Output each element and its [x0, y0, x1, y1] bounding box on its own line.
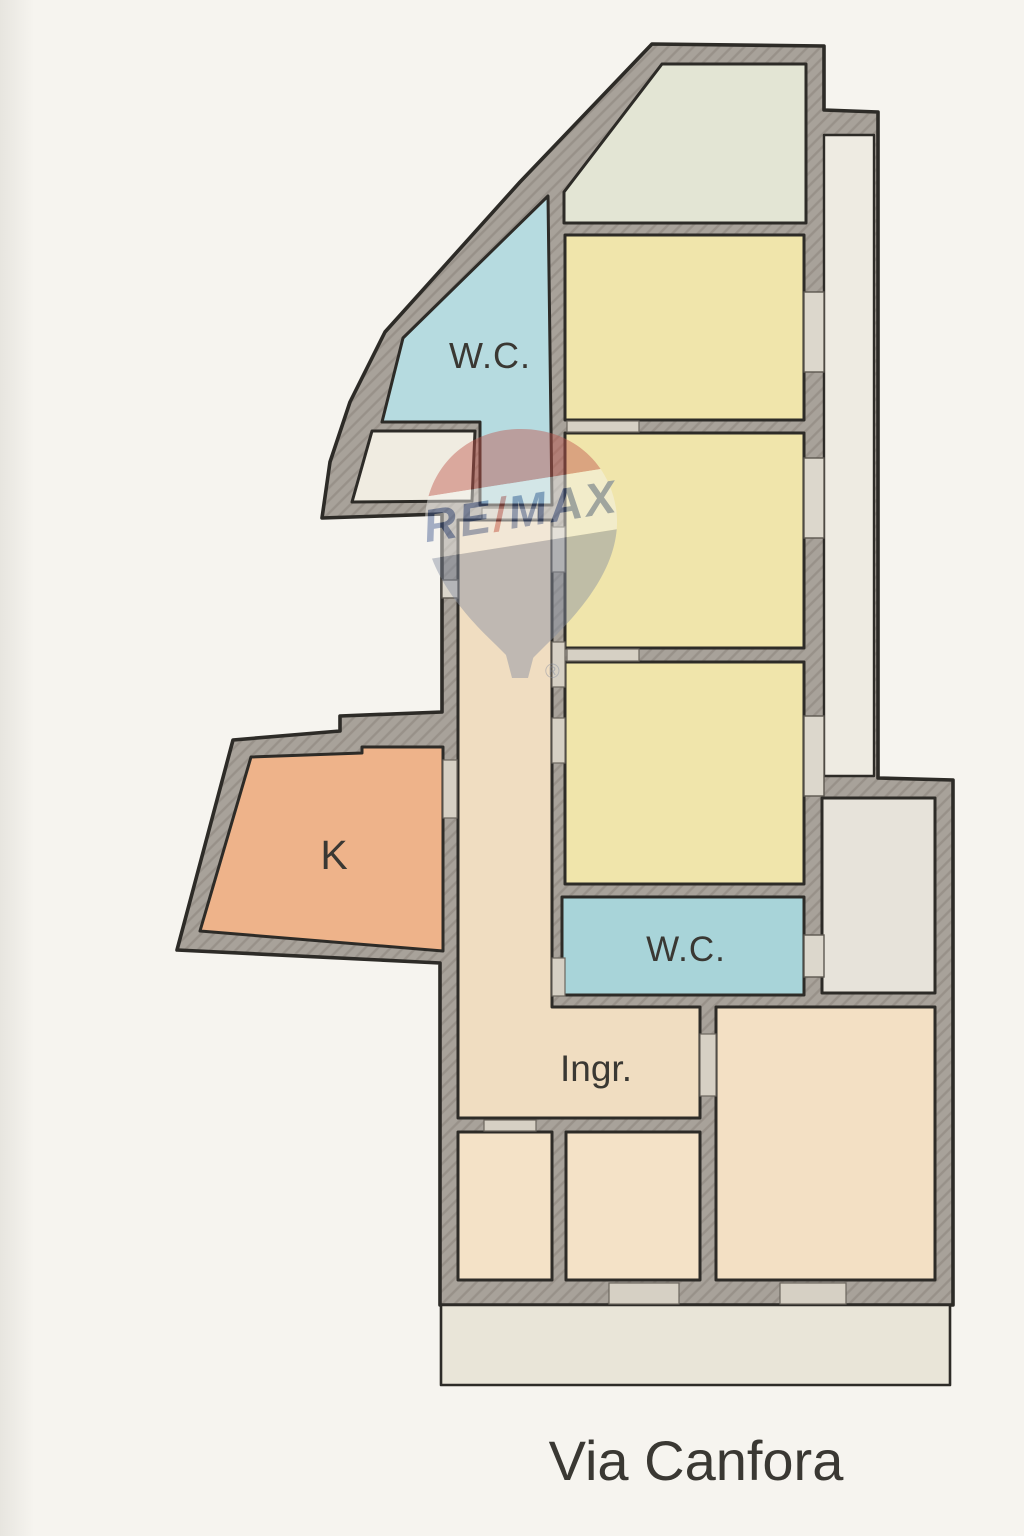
floorplan-page: { "plan": { "street_label": "Via Canfora…	[0, 0, 1024, 1536]
door-opening	[484, 1120, 536, 1131]
room-bedroom-1	[565, 235, 804, 420]
label-wc-top: W.C.	[449, 335, 531, 376]
door-opening	[567, 421, 639, 432]
room-living	[716, 1007, 935, 1280]
room-bottom-2	[566, 1132, 700, 1280]
label-entrance: Ingr.	[560, 1048, 632, 1089]
window-opening	[804, 716, 824, 796]
room-storage	[822, 798, 935, 993]
room-bedroom-3	[565, 662, 804, 884]
balcony-bottom	[441, 1305, 950, 1385]
label-wc-mid: W.C.	[646, 930, 726, 969]
door-opening	[443, 760, 457, 818]
door-opening	[609, 1283, 679, 1304]
door-opening	[700, 1034, 716, 1096]
door-opening	[552, 958, 565, 996]
room-bottom-1	[458, 1132, 552, 1280]
registered-mark: ®	[545, 661, 560, 683]
room-top	[564, 64, 806, 223]
window-opening	[804, 935, 824, 977]
window-opening	[804, 292, 824, 372]
door-opening	[552, 718, 565, 763]
street-name: Via Canfora	[549, 1429, 845, 1492]
door-opening	[567, 649, 639, 661]
balcony-right	[824, 135, 874, 776]
floorplan-svg: ® RE/MAX W.C. W.C. K Ingr. Via Canfora	[0, 0, 1024, 1536]
door-opening	[780, 1283, 846, 1304]
window-opening	[804, 458, 824, 538]
label-kitchen: K	[320, 832, 347, 878]
